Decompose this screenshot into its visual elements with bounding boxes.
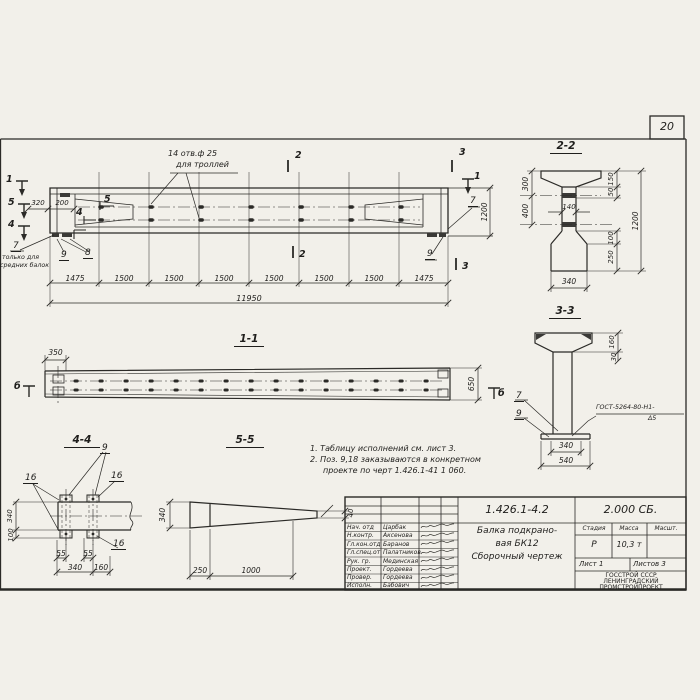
sig-name-3: Палатников <box>383 549 421 557</box>
dim-seg-3: 1500 <box>207 274 241 283</box>
title-line-3: Сборочный чертеж <box>461 552 573 562</box>
cut-marker-5: 5 <box>104 194 111 205</box>
s33-weld-note2: Δ5 <box>648 415 656 422</box>
s44-dim-100: 100 <box>6 520 16 550</box>
sig-name-1: Аксенова <box>383 532 413 540</box>
sig-name-0: Царбак <box>383 524 406 532</box>
callout-7: 7 <box>11 241 21 252</box>
doc-number: 1.426.1-4.2 <box>462 503 572 516</box>
section-marker-5: 5 <box>8 197 15 208</box>
sig-role-0: Нач. отд <box>347 524 374 532</box>
s22-dim-400: 400 <box>521 196 531 226</box>
s55-dim-340: 340 <box>158 500 168 530</box>
sig-name-7: Бабович <box>383 582 409 590</box>
section-2-2 <box>520 168 646 292</box>
beam-elevation <box>10 160 493 307</box>
callout-8: 8 <box>83 248 93 259</box>
signatures <box>421 524 454 587</box>
note-line-2: 2. Поз. 9,18 заказываются в конкретном <box>310 455 481 464</box>
s11-dim-350: 350 <box>43 348 68 357</box>
drawing-sheet: 20 14 отв.ф 25 для троллей 320 200 1 5 4… <box>0 0 700 700</box>
callout-9: 9 <box>59 250 69 261</box>
callout-7-right: 7 <box>468 196 478 207</box>
sig-role-6: Провер. <box>347 574 372 582</box>
note-line-1: 1. Таблицу исполнений см. лист 3. <box>310 444 456 453</box>
s33-dim-540: 540 <box>548 456 584 465</box>
s22-dim-300: 300 <box>521 169 531 199</box>
dim-320: 320 <box>26 199 50 207</box>
s33-weld-note1: ГОСТ-5264-80-Н1- <box>596 404 655 411</box>
dim-seg-0: 1475 <box>58 274 92 283</box>
sig-role-3: Гл.спец.от <box>347 549 380 557</box>
dim-200: 200 <box>50 199 74 207</box>
sig-name-4: Мединская <box>383 558 418 566</box>
s33-callout-7: 7 <box>514 391 524 402</box>
s44-dim-160: 160 <box>87 563 115 572</box>
dim-seg-5: 1500 <box>307 274 341 283</box>
sig-name-2: Баранов <box>383 541 409 549</box>
section-marker-2-bottom: 2 <box>299 249 306 260</box>
s55-dim-1000: 1000 <box>234 566 268 575</box>
callout-9-right: 9 <box>425 249 435 260</box>
dim-seg-6: 1500 <box>357 274 391 283</box>
s44-dim-55a: 55 <box>52 549 70 558</box>
sig-name-5: Гордеева <box>383 566 413 574</box>
s22-dim-140: 140 <box>551 203 587 211</box>
section-marker-3-bottom: 3 <box>462 261 469 272</box>
section-marker-1: 1 <box>6 174 13 185</box>
sheet-label: Лист 1 <box>579 560 603 568</box>
s22-dim-50: 50 <box>606 177 616 207</box>
hole-note-line1: 14 отв.ф 25 <box>168 149 217 158</box>
sig-role-5: Проект. <box>347 566 372 574</box>
s55-dim-250: 250 <box>188 566 212 575</box>
doc-code: 2.000 СБ. <box>578 503 683 516</box>
s11-dim-650: 650 <box>467 369 477 399</box>
section-1-1-label: 1-1 <box>234 333 264 347</box>
section-1-1 <box>23 355 500 404</box>
dim-1200: 1200 <box>480 197 490 227</box>
dim-total: 11950 <box>227 294 271 303</box>
s22-dim-1200: 1200 <box>631 206 641 236</box>
callout-7-note2: средних балок <box>0 262 49 269</box>
sig-role-4: Рук. гр. <box>347 558 370 566</box>
hole-note-line2: для троллей <box>176 160 229 169</box>
sig-name-6: Гордеева <box>383 574 413 582</box>
sig-role-1: Н.контр. <box>347 532 374 540</box>
s33-dim-30: 30 <box>609 342 619 372</box>
s44-callout-9: 9 <box>100 443 110 454</box>
note-line-3: проекте по черт 1.426.1-41 1 060. <box>323 466 466 475</box>
stage-value: Р <box>576 540 612 550</box>
sig-role-2: Гл.кон.отд <box>347 541 381 549</box>
section-marker-1-right: 1 <box>474 171 481 182</box>
s11-marker-b-right: б <box>498 388 505 399</box>
s22-dim-250: 250 <box>606 242 616 272</box>
s44-dim-340: 340 <box>60 563 90 572</box>
s44-callout-16-left: 16 <box>23 473 38 484</box>
org-line-3: ПРОМСТРОЙПРОЕКТ <box>576 584 686 592</box>
section-5-5-label: 5-5 <box>226 434 264 448</box>
sig-role-7: Исполн. <box>347 582 372 590</box>
section-4-4-label: 4-4 <box>64 434 100 448</box>
sheets-label: Листов 3 <box>633 560 666 568</box>
s44-callout-16-bottom: 16 <box>111 539 126 550</box>
title-line-2: вая БК12 <box>461 539 573 549</box>
s44-callout-16-right: 16 <box>109 471 124 482</box>
col-scale: Масшт. <box>647 525 685 533</box>
s33-callout-9: 9 <box>514 409 524 420</box>
s44-dim-55b: 55 <box>79 549 97 558</box>
dim-seg-4: 1500 <box>257 274 291 283</box>
mass-value: 10,3 т <box>612 540 646 549</box>
dim-seg-7: 1475 <box>407 274 441 283</box>
section-3-3-label: 3-3 <box>549 305 581 319</box>
title-line-1: Балка подкрано- <box>461 526 573 536</box>
page-number: 20 <box>650 120 684 133</box>
dim-seg-2: 1500 <box>157 274 191 283</box>
dim-seg-1: 1500 <box>107 274 141 283</box>
cut-marker-4: 4 <box>76 207 83 218</box>
section-3-3 <box>515 330 684 470</box>
section-marker-2-top: 2 <box>295 150 302 161</box>
section-2-2-label: 2-2 <box>550 140 582 154</box>
s33-dim-340: 340 <box>548 441 584 450</box>
col-mass: Масса <box>612 525 646 533</box>
section-marker-4: 4 <box>8 219 15 230</box>
col-stage: Стадия <box>576 525 612 533</box>
callout-7-note1: только для <box>2 254 39 261</box>
section-marker-3-top: 3 <box>459 147 466 158</box>
drawing-linework <box>0 0 700 700</box>
s11-marker-b-left: б <box>14 381 21 392</box>
s22-dim-340: 340 <box>551 277 587 286</box>
